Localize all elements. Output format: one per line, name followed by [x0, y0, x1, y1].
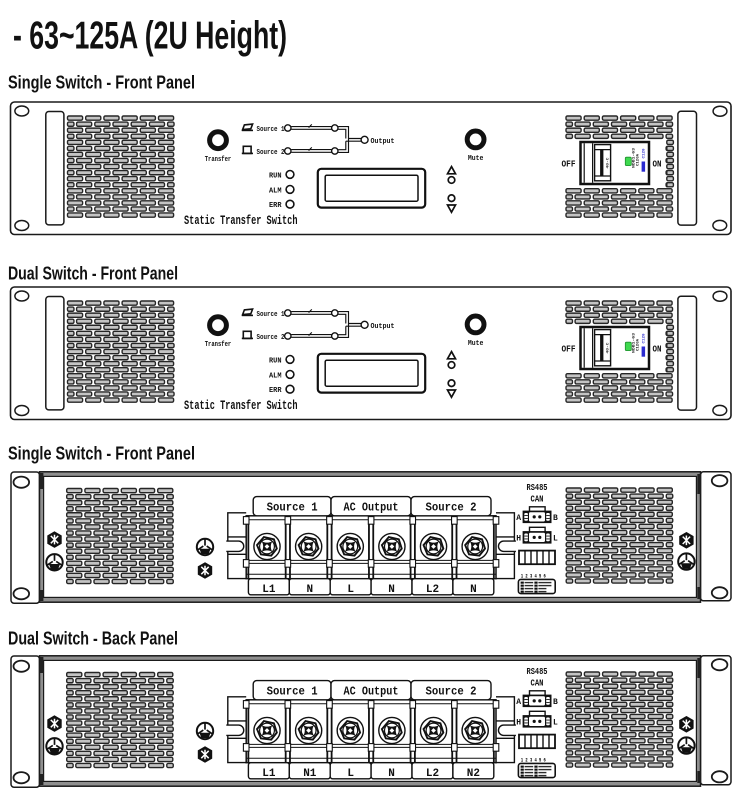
svg-text:N2: N2 — [467, 768, 480, 780]
svg-text:ALM: ALM — [269, 187, 282, 195]
svg-text:RS485: RS485 — [527, 483, 548, 493]
svg-text:Output: Output — [371, 138, 395, 146]
svg-text:N1: N1 — [303, 768, 317, 780]
svg-text:N: N — [306, 584, 313, 596]
svg-text:Source 2: Source 2 — [257, 149, 285, 157]
svg-text:L: L — [553, 535, 558, 544]
svg-text:Mute: Mute — [468, 155, 484, 163]
svg-text:Source 1: Source 1 — [257, 126, 285, 134]
svg-text:Transfer: Transfer — [205, 156, 232, 164]
svg-text:Source 2: Source 2 — [426, 502, 477, 515]
svg-text:C120A: C120A — [637, 153, 641, 166]
svg-text:N: N — [388, 768, 395, 780]
svg-text:OFF: OFF — [562, 159, 576, 170]
svg-text:N: N — [470, 584, 477, 596]
svg-text:Single Switch - Front Panel: Single Switch - Front Panel — [8, 442, 195, 463]
svg-text:Dual Switch - Back Panel: Dual Switch - Back Panel — [8, 628, 178, 649]
svg-text:L2: L2 — [426, 584, 439, 596]
svg-text:L: L — [347, 768, 354, 780]
svg-text:AC Output: AC Output — [344, 502, 399, 515]
svg-text:Static Transfer Switch: Static Transfer Switch — [184, 213, 298, 228]
svg-text:Dual Switch - Front Panel: Dual Switch - Front Panel — [8, 263, 178, 284]
svg-text:- 63~125A (2U Height): - 63~125A (2U Height) — [13, 15, 287, 58]
svg-text:L1: L1 — [262, 584, 276, 596]
svg-text:Single Switch - Front Panel: Single Switch - Front Panel — [8, 72, 195, 93]
svg-text:ON: ON — [653, 159, 662, 170]
svg-text:L: L — [347, 584, 354, 596]
svg-text:RUN: RUN — [269, 172, 282, 180]
svg-text:L2: L2 — [426, 768, 439, 780]
svg-text:B: B — [553, 514, 558, 523]
svg-text:40-C: 40-C — [606, 156, 610, 168]
svg-text:CAN: CAN — [531, 494, 544, 504]
svg-text:N: N — [388, 584, 395, 596]
svg-text:L1: L1 — [262, 768, 276, 780]
svg-text:1 2 3 4 5 6: 1 2 3 4 5 6 — [521, 572, 546, 579]
svg-text:A: A — [516, 514, 521, 523]
svg-text:H: H — [516, 535, 521, 544]
svg-text:ERR: ERR — [269, 202, 282, 210]
svg-text:Source 1: Source 1 — [267, 502, 318, 515]
svg-text:C120: C120 — [642, 148, 646, 159]
